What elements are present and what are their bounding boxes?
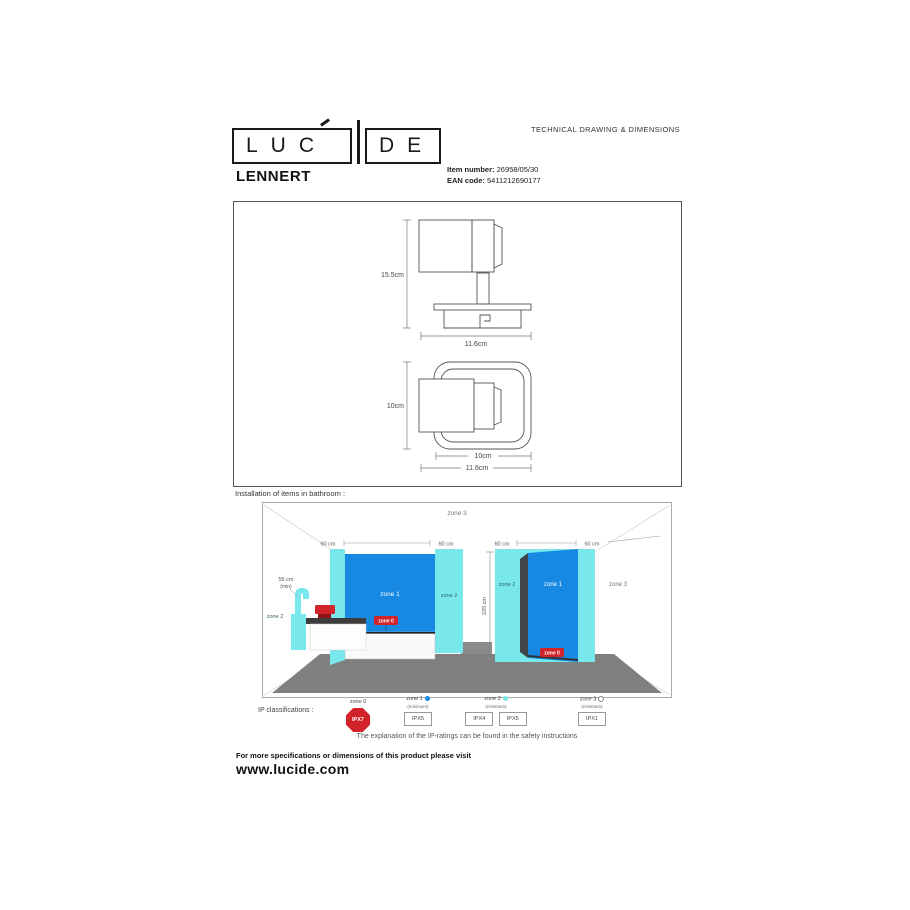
- legend-zone2-sub: (minimum): [464, 703, 528, 710]
- legend-zone2-label: zone 2: [464, 696, 528, 703]
- logo-letters-right: DE: [379, 134, 434, 158]
- shower-dark-panel: [520, 553, 528, 658]
- technical-drawing-panel: 15.5cm 11.6cm: [233, 201, 682, 487]
- tub-right-zone2-strip: [435, 549, 463, 653]
- zone3-ipx1-box: IPX1: [578, 712, 606, 726]
- legend-zone0-label: zone 0: [338, 699, 378, 706]
- dim-60cm-4: 60 cm: [585, 542, 600, 548]
- tub-zone1-label: zone 1: [380, 591, 400, 598]
- top-spot-cap: [494, 387, 501, 425]
- side-width-dim: 11.6cm: [465, 341, 488, 348]
- logo-divider-i: [357, 120, 360, 164]
- ean-row: EAN code: 5411212690177: [447, 175, 541, 186]
- logo-accent-mark: [320, 118, 330, 126]
- ean-label: EAN code:: [447, 176, 485, 185]
- bathroom-diagram: zone 3 zone 1 zone 2 zone 0: [262, 502, 672, 698]
- ip-ratings-note: The explanation of the IP-ratings can be…: [262, 733, 672, 740]
- room-height-dim: 225 cm: [482, 597, 488, 615]
- zone2-ipx5-box: IPX5: [499, 712, 527, 726]
- zone0-ipx7-badge: IPX7: [346, 708, 370, 732]
- faucet-red-marker: [315, 605, 335, 614]
- legend-zone3-label: zone 3: [572, 696, 612, 703]
- faucet-zone2-label: zone 2: [267, 614, 284, 620]
- legend-zone1: zone 1 (minimum) IPX5: [398, 696, 438, 726]
- legend-zone1-label: zone 1: [398, 696, 438, 703]
- zone2-ipx4-box: IPX4: [465, 712, 493, 726]
- legend-zone2: zone 2 (minimum) IPX4 IPX5: [464, 696, 528, 726]
- side-spot-cap: [494, 224, 502, 268]
- logo-box-left: LUC: [232, 128, 352, 164]
- footer-text: For more specifications or dimensions of…: [236, 751, 471, 760]
- item-number-label: Item number:: [447, 165, 495, 174]
- top-view: [403, 362, 531, 472]
- ean-value: 5411212690177: [487, 176, 541, 185]
- side-spot-lens: [472, 220, 494, 272]
- logo-letters-left: LUC: [246, 134, 327, 158]
- top-width-outer-dim: 11.6cm: [466, 465, 489, 472]
- website-link[interactable]: www.lucide.com: [236, 761, 349, 777]
- shower-zone0-label: zone 0: [544, 651, 560, 657]
- legend-zone3-sub: (minimum): [572, 703, 612, 710]
- faucet-pedestal: [291, 614, 306, 650]
- bathroom-title: Installation of items in bathroom :: [235, 489, 345, 498]
- side-stem: [477, 273, 489, 304]
- legend-zone1-sub: (minimum): [398, 703, 438, 710]
- product-codes: Item number: 26958/05/30 EAN code: 54112…: [447, 164, 541, 186]
- counter-cabinet: [310, 624, 366, 650]
- top-height-dim: 10cm: [387, 403, 404, 410]
- product-title: LENNERT: [236, 168, 311, 185]
- zone3-color-dot: [598, 696, 604, 702]
- side-base-body: [444, 310, 521, 328]
- doc-type-label: TECHNICAL DRAWING & DIMENSIONS: [430, 125, 680, 134]
- technical-drawing-svg: 15.5cm 11.6cm: [234, 202, 681, 486]
- top-spot-lens: [474, 383, 494, 429]
- dim-60cm-2: 60 cm: [439, 542, 454, 548]
- wall-zone3-label: zone 3: [609, 582, 628, 588]
- zone1-ipx5-box: IPX5: [404, 712, 432, 726]
- item-number-row: Item number: 26958/05/30: [447, 164, 541, 175]
- item-number-value: 26958/05/30: [497, 165, 539, 174]
- zone3-top-label: zone 3: [447, 510, 467, 517]
- legend-zone3: zone 3 (minimum) IPX1: [572, 696, 612, 726]
- zone2-color-dot: [503, 696, 508, 701]
- side-view: [403, 220, 531, 340]
- side-spot-body: [419, 220, 472, 272]
- shower-zone1-label: zone 1: [544, 582, 563, 588]
- spec-sheet-page: LUC DE TECHNICAL DRAWING & DIMENSIONS LE…: [0, 0, 910, 910]
- side-base-plate: [434, 304, 531, 310]
- ip-classifications-title: IP classifications :: [258, 707, 314, 714]
- zone1-color-dot: [425, 696, 430, 701]
- side-base-clip: [480, 315, 490, 328]
- bathroom-svg: zone 3 zone 1 zone 2 zone 0: [262, 502, 672, 698]
- tub-zone0-label: zone 0: [378, 619, 394, 625]
- counter-shelf: [306, 618, 366, 624]
- faucet-dim-label: 55 cm: [279, 577, 294, 583]
- legend-zone0: zone 0 IPX7: [338, 699, 378, 732]
- shower-zone2-label: zone 2: [499, 582, 516, 588]
- lucide-logo: LUC DE: [232, 120, 441, 164]
- dim-60cm-3: 60 cm: [495, 542, 510, 548]
- top-width-inner-dim: 10cm: [474, 453, 491, 460]
- dim-60cm-1: 60 cm: [321, 542, 336, 548]
- faucet-red-marker-dark: [318, 614, 331, 618]
- faucet-dim-min-label: (min): [280, 584, 292, 590]
- shower-zone1-panel: [528, 549, 578, 662]
- top-spot-body: [419, 379, 474, 432]
- zone2-rating-boxes: IPX4 IPX5: [464, 710, 528, 726]
- tub-zone2-label: zone 2: [441, 593, 458, 599]
- side-height-dim: 15.5cm: [381, 272, 404, 279]
